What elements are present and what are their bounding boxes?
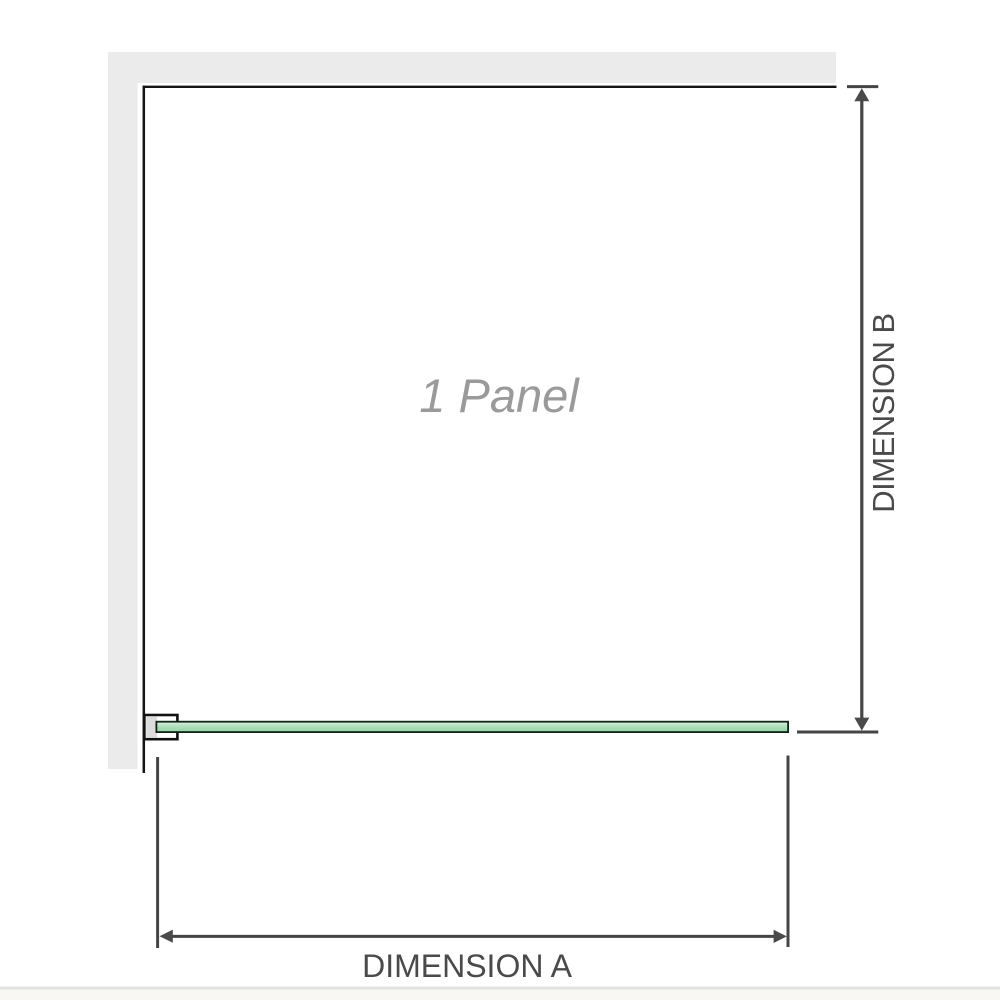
svg-text:DIMENSION B: DIMENSION B — [866, 313, 901, 512]
svg-text:1 Panel: 1 Panel — [419, 369, 580, 422]
svg-text:DIMENSION A: DIMENSION A — [362, 948, 572, 984]
